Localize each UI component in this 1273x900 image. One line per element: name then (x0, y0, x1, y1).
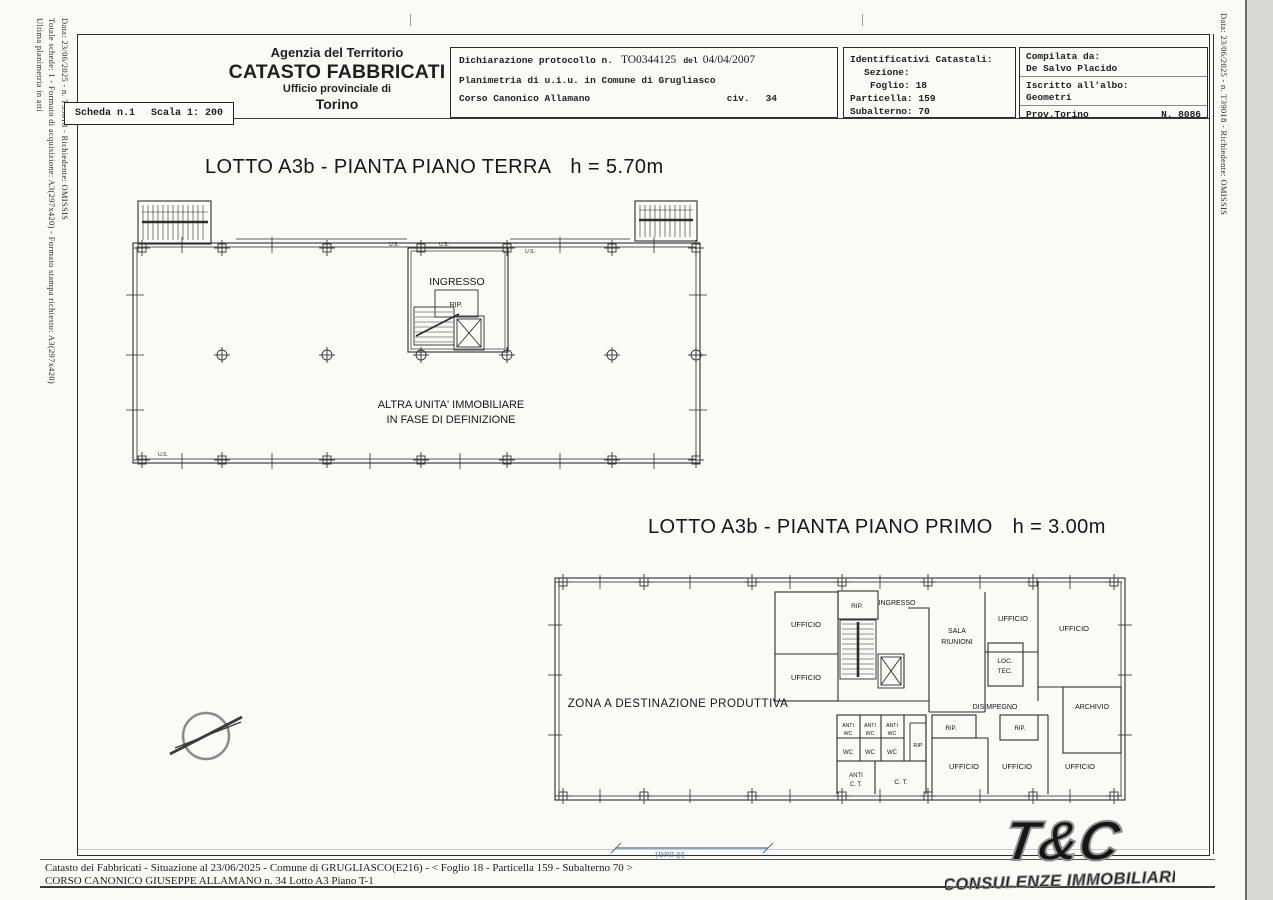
first-floor-plan: ZONA A DESTINAZIONE PRODUTTIVA UFFICIO U… (540, 565, 1140, 815)
agency-line2: CATASTO FABBRICATI (228, 61, 446, 83)
albo-number: N. 8086 (1161, 109, 1201, 121)
room-label-anti: ANTI (842, 723, 854, 729)
first-floor-title: LOTTO A3b - PIANTA PIANO PRIMO h = 3.00m (648, 516, 1106, 539)
external-stair-right (635, 201, 697, 241)
scanned-cadastral-document: { "margins": { "left": [ "Data: 23/06/20… (0, 0, 1273, 900)
us-label: U.S. (525, 249, 535, 255)
scheda-scala-box: Scheda n.1 Scala 1: 200 (64, 102, 234, 125)
room-label-anti-ct-1: ANTI (849, 773, 863, 779)
first-floor-height: h = 3.00m (1013, 516, 1106, 538)
scale-bar (600, 838, 790, 854)
us-label: U.S. (439, 242, 449, 248)
albo-label: Iscritto all'albo: (1026, 80, 1201, 92)
logo-sub-text: CONSULENZE IMMOBILIARI (945, 868, 1175, 894)
room-label-disimpegno: DISIMPEGNO (973, 704, 1018, 711)
compilata-box: Compilata da: De Salvo Placido Iscritto … (1019, 47, 1208, 118)
label-altra-unita-1: ALTRA UNITA' IMMOBILIARE (378, 399, 525, 411)
albo-value: Geometri (1026, 92, 1201, 104)
civ-label: civ. (727, 94, 750, 104)
prov-label: Prov.Torino (1026, 109, 1089, 121)
room-label-ufficio: UFFICIO (1059, 624, 1089, 633)
structural-columns (134, 240, 704, 468)
room-label-wc: WC (865, 750, 876, 756)
ground-floor-title-text: LOTTO A3b - PIANTA PIANO TERRA (205, 156, 550, 178)
label-altra-unita-2: IN FASE DI DEFINIZIONE (387, 414, 516, 426)
scheda-number: Scheda n.1 (75, 108, 135, 119)
room-label-ufficio: UFFICIO (998, 614, 1028, 623)
room-label-ufficio: UFFICIO (791, 673, 821, 682)
ground-floor-title: LOTTO A3b - PIANTA PIANO TERRA h = 5.70m (205, 156, 664, 179)
catastali-particella: Particella: 159 (850, 92, 1009, 105)
room-label-ufficio: UFFICIO (1065, 762, 1095, 771)
crop-mark (410, 14, 411, 26)
ground-floor-height: h = 5.70m (570, 156, 663, 178)
room-label-wc: WC (866, 731, 875, 737)
declaration-box: Dichiarazione protocollo n. TO0344125 de… (450, 47, 838, 118)
room-label-archivio: ARCHIVIO (1075, 704, 1109, 711)
room-label-anti: ANTI (864, 723, 876, 729)
agency-line4: Torino (228, 96, 446, 112)
room-label-loc-2: TEC. (998, 668, 1013, 675)
agency-line1: Agenzia del Territorio (228, 46, 446, 61)
room-label-rip-small: RIP (913, 743, 923, 749)
scan-right-strip (1247, 0, 1273, 900)
room-label-wc: WC (843, 750, 854, 756)
agency-line3: Ufficio provinciale di (228, 83, 446, 96)
planimetria-line: Planimetria di u.i.u. in Comune di Grugl… (459, 76, 716, 86)
first-floor-title-text: LOTTO A3b - PIANTA PIANO PRIMO (648, 516, 993, 538)
footer-line-1: Catasto dei Fabbricati - Situazione al 2… (45, 862, 633, 875)
compilata-label: Compilata da: (1026, 51, 1201, 63)
us-label: U.S. (389, 242, 399, 248)
room-label-ufficio: UFFICIO (1002, 762, 1032, 771)
catastali-foglio: Foglio: 18 (850, 79, 1009, 92)
room-label-ingresso: INGRESSO (879, 600, 917, 607)
compilata-name: De Salvo Placido (1026, 63, 1201, 75)
catastali-box: Identificativi Catastali: Sezione: Fogli… (843, 47, 1016, 118)
room-label-rip: RIP. (1015, 726, 1026, 732)
entrance-vestibule (408, 248, 508, 352)
street-name: Corso Canonico Allamano (459, 94, 590, 104)
room-label-anti-ct-2: C. T. (850, 782, 863, 788)
civ-number: 34 (766, 94, 777, 104)
margin-note-date-right: Data: 23/06/2025 - n. T39018 - Richieden… (1219, 13, 1229, 215)
protocol-date: 04/04/2007 (703, 55, 755, 67)
room-label-loc-1: LOC. (997, 658, 1012, 665)
room-label-ct: C. T. (894, 779, 907, 786)
us-label: U.S. (158, 452, 168, 458)
room-label-wc: WC (888, 731, 897, 737)
room-label-rip: RIP. (851, 603, 863, 610)
ground-floor-plan: INGRESSO RIP. ALTRA UNITA' IMMOBILIARE I… (90, 195, 730, 485)
room-label-wc: WC (844, 731, 853, 737)
tc-consulenze-logo: T&C CONSULENZE IMMOBILIARI (945, 806, 1175, 896)
logo-main-text: T&C (1000, 809, 1125, 872)
room-label-rip: RIP. (946, 726, 957, 732)
room-label-ingresso: INGRESSO (429, 276, 484, 288)
crop-mark (862, 14, 863, 26)
catastali-sezione: Sezione: (850, 66, 1009, 79)
room-label-anti: ANTI (886, 723, 898, 729)
room-label-wc: WC (887, 750, 898, 756)
room-label-sala-1: SALA (948, 628, 966, 635)
agency-header: Agenzia del Territorio CATASTO FABBRICAT… (228, 46, 446, 112)
room-label-ufficio: UFFICIO (791, 620, 821, 629)
room-label-sala-2: RIUNIONI (941, 639, 973, 646)
north-compass-icon (168, 702, 244, 768)
catastali-subalterno: Subalterno: 70 (850, 105, 1009, 118)
scan-edge-line (1245, 0, 1247, 900)
room-label-ufficio: UFFICIO (949, 762, 979, 771)
catastali-title: Identificativi Catastali: (850, 53, 1009, 66)
margin-note-ultima: Ultima planimetria in atti (35, 18, 45, 112)
room-label-zona-produttiva: ZONA A DESTINAZIONE PRODUTTIVA (568, 698, 789, 710)
protocol-number: TO0344125 (621, 55, 676, 67)
scala-value: Scala 1: 200 (151, 108, 223, 119)
declaration-label: Dichiarazione protocollo n. (459, 56, 613, 66)
room-label-rip: RIP. (450, 302, 463, 309)
external-stair-left (138, 201, 211, 244)
del-word: del (683, 58, 697, 66)
margin-note-format: Totale schede: 1 - Formato di acquisizio… (47, 18, 57, 384)
document-frame-double-line (1213, 34, 1214, 854)
